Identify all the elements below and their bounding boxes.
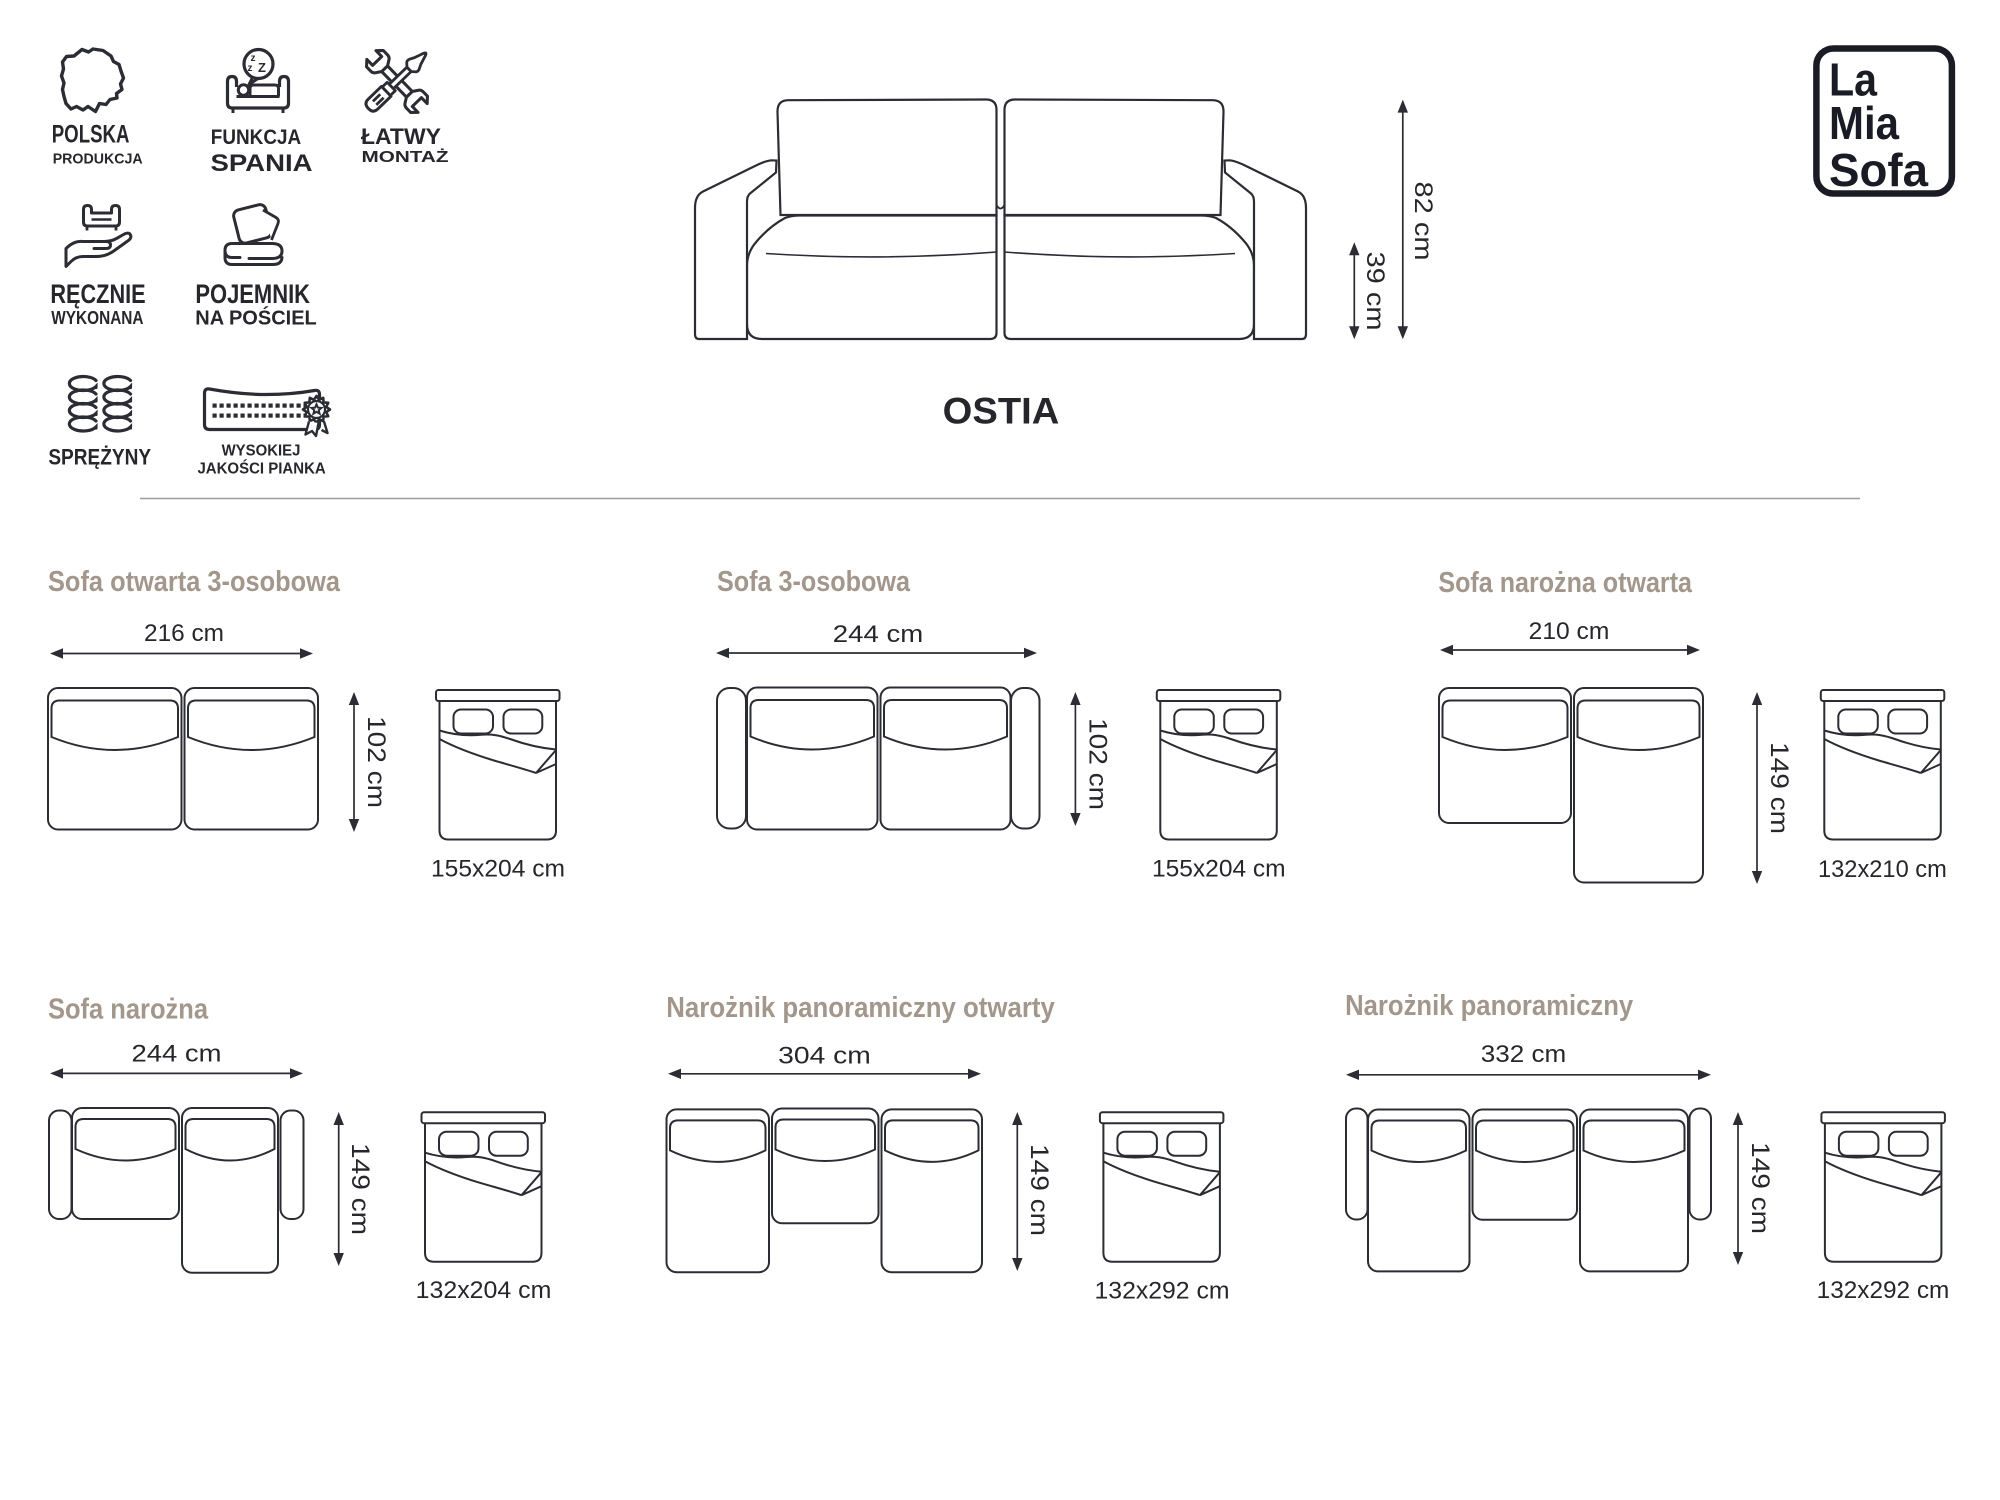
svg-text:132x210 cm: 132x210 cm xyxy=(1818,856,1947,883)
svg-text:POJEMNIK: POJEMNIK xyxy=(195,279,310,309)
svg-text:Z: Z xyxy=(258,60,266,75)
svg-text:82 cm: 82 cm xyxy=(1409,182,1437,261)
svg-text:155x204 cm: 155x204 cm xyxy=(1152,856,1286,883)
svg-text:102 cm: 102 cm xyxy=(362,716,390,808)
svg-text:Sofa: Sofa xyxy=(1829,144,1928,196)
svg-text:WYKONANA: WYKONANA xyxy=(51,307,143,328)
svg-text:SPRĘŻYNY: SPRĘŻYNY xyxy=(48,444,151,469)
svg-text:Narożnik panoramiczny: Narożnik panoramiczny xyxy=(1345,990,1633,1022)
svg-text:Sofa 3-osobowa: Sofa 3-osobowa xyxy=(717,566,911,598)
svg-text:OSTIA: OSTIA xyxy=(943,389,1060,431)
svg-text:210 cm: 210 cm xyxy=(1529,618,1610,645)
svg-text:NA POŚCIEL: NA POŚCIEL xyxy=(195,306,317,330)
svg-text:39 cm: 39 cm xyxy=(1361,252,1389,331)
svg-text:RĘCZNIE: RĘCZNIE xyxy=(50,279,145,309)
svg-text:149 cm: 149 cm xyxy=(346,1143,374,1235)
svg-text:244 cm: 244 cm xyxy=(833,621,923,648)
svg-text:155x204 cm: 155x204 cm xyxy=(431,856,565,883)
svg-text:244 cm: 244 cm xyxy=(132,1041,222,1068)
svg-text:132x204 cm: 132x204 cm xyxy=(416,1277,552,1304)
svg-text:304 cm: 304 cm xyxy=(778,1042,871,1069)
svg-text:JAKOŚCI PIANKA: JAKOŚCI PIANKA xyxy=(197,459,325,477)
svg-text:Mia: Mia xyxy=(1829,97,1899,149)
svg-text:332 cm: 332 cm xyxy=(1481,1041,1566,1068)
svg-text:149 cm: 149 cm xyxy=(1765,742,1793,834)
svg-text:Sofa narożna: Sofa narożna xyxy=(48,993,209,1025)
svg-text:FUNKCJA: FUNKCJA xyxy=(211,126,301,149)
svg-text:132x292 cm: 132x292 cm xyxy=(1095,1278,1230,1305)
svg-text:132x292 cm: 132x292 cm xyxy=(1817,1277,1950,1304)
svg-text:POLSKA: POLSKA xyxy=(52,121,130,149)
svg-text:z: z xyxy=(248,63,253,74)
svg-text:Sofa otwarta 3-osobowa: Sofa otwarta 3-osobowa xyxy=(48,566,341,598)
svg-text:Narożnik panoramiczny otwarty: Narożnik panoramiczny otwarty xyxy=(666,992,1055,1024)
svg-text:102 cm: 102 cm xyxy=(1084,718,1112,810)
svg-text:Sofa narożna otwarta: Sofa narożna otwarta xyxy=(1438,567,1693,599)
svg-text:MONTAŻ: MONTAŻ xyxy=(362,148,449,166)
svg-text:149 cm: 149 cm xyxy=(1746,1142,1774,1234)
svg-text:WYSOKIEJ: WYSOKIEJ xyxy=(222,442,301,459)
svg-text:216 cm: 216 cm xyxy=(144,620,224,647)
svg-text:149 cm: 149 cm xyxy=(1025,1144,1053,1236)
svg-text:SPANIA: SPANIA xyxy=(211,150,313,177)
svg-text:PRODUKCJA: PRODUKCJA xyxy=(53,151,143,168)
svg-text:ŁATWY: ŁATWY xyxy=(361,124,441,149)
